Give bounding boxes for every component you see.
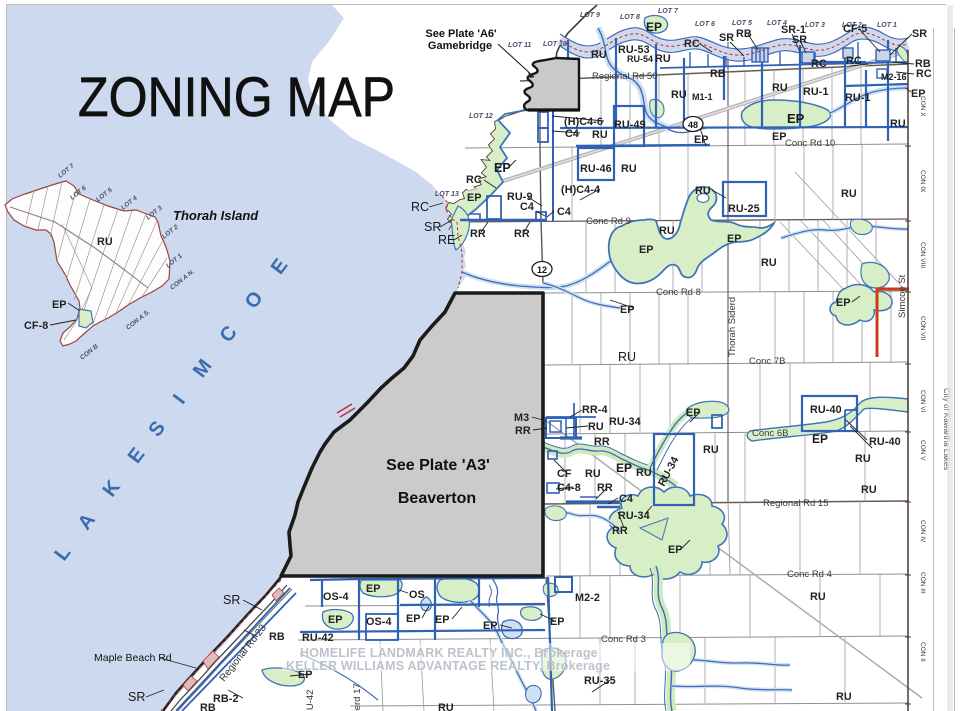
svg-text:RU: RU	[636, 467, 652, 479]
svg-text:Simcoe St: Simcoe St	[897, 274, 908, 318]
svg-text:EP: EP	[52, 299, 67, 311]
svg-text:RR: RR	[597, 482, 613, 494]
svg-text:CF: CF	[557, 468, 572, 480]
svg-text:RC: RC	[811, 58, 827, 70]
svg-text:Siderd 17: Siderd 17	[352, 683, 363, 711]
svg-text:LOT 7: LOT 7	[658, 8, 679, 15]
svg-text:RC: RC	[466, 174, 482, 186]
svg-text:RR: RR	[470, 228, 486, 240]
svg-text:HOMELIFE LANDMARK REALTY INC.,: HOMELIFE LANDMARK REALTY INC., Brokerage	[300, 646, 598, 660]
svg-text:Conc Rd 4: Conc Rd 4	[787, 569, 832, 580]
svg-text:RU: RU	[621, 163, 637, 175]
svg-text:LOT 10: LOT 10	[543, 41, 567, 48]
svg-text:Thorah Island: Thorah Island	[173, 208, 259, 223]
svg-text:C4: C4	[557, 206, 571, 218]
svg-text:RU-1: RU-1	[845, 92, 871, 104]
svg-text:Conc Rd 10: Conc Rd 10	[785, 138, 835, 149]
svg-text:EP: EP	[467, 192, 482, 204]
svg-text:RU: RU	[671, 89, 687, 101]
svg-text:RB: RB	[710, 68, 726, 80]
svg-text:CON IV: CON IV	[919, 520, 926, 543]
svg-text:EP: EP	[668, 544, 683, 556]
svg-text:RU-34: RU-34	[618, 510, 650, 522]
svg-text:12: 12	[537, 265, 547, 275]
svg-text:CON X: CON X	[919, 96, 926, 117]
svg-text:CON II: CON II	[919, 642, 926, 662]
svg-text:RB: RB	[736, 28, 752, 40]
svg-text:RU-40: RU-40	[810, 404, 842, 416]
svg-text:RR: RR	[612, 525, 628, 537]
svg-text:M2-2: M2-2	[575, 592, 600, 604]
svg-text:C4: C4	[565, 128, 579, 140]
svg-text:EP: EP	[366, 583, 381, 595]
svg-text:EP: EP	[646, 20, 662, 34]
svg-text:RU: RU	[695, 185, 711, 197]
svg-text:EP: EP	[812, 432, 828, 446]
svg-text:See Plate 'A3': See Plate 'A3'	[386, 457, 490, 474]
svg-text:RU-40: RU-40	[869, 436, 901, 448]
svg-text:LOT 1: LOT 1	[877, 22, 897, 29]
svg-text:RU-34: RU-34	[609, 416, 641, 428]
svg-text:OS-4: OS-4	[323, 591, 349, 603]
svg-text:LOT 12: LOT 12	[469, 113, 493, 120]
svg-text:RU: RU	[855, 453, 871, 465]
svg-text:CON III: CON III	[919, 572, 926, 594]
svg-text:RU: RU	[655, 53, 671, 65]
svg-text:Conc 7B: Conc 7B	[749, 356, 785, 367]
svg-text:Regional Rd 50: Regional Rd 50	[592, 71, 658, 82]
svg-text:EP: EP	[406, 613, 421, 625]
svg-text:OS: OS	[409, 589, 425, 601]
svg-text:Conc 6B: Conc 6B	[752, 428, 788, 439]
svg-text:RC: RC	[411, 200, 429, 214]
svg-text:C4-8: C4-8	[557, 482, 581, 494]
svg-text:CON VI: CON VI	[919, 390, 926, 413]
svg-text:RU: RU	[761, 257, 777, 269]
svg-text:EP: EP	[772, 131, 787, 143]
svg-text:RC: RC	[684, 38, 700, 50]
svg-text:RU-49: RU-49	[614, 119, 646, 131]
svg-text:RB-2: RB-2	[213, 693, 239, 705]
svg-text:SR: SR	[719, 32, 734, 44]
svg-text:CON VIII: CON VIII	[919, 242, 926, 268]
svg-text:ZONING MAP: ZONING MAP	[78, 65, 395, 128]
svg-text:M3: M3	[514, 412, 529, 424]
svg-text:RR: RR	[515, 425, 531, 437]
svg-text:RU: RU	[97, 236, 113, 248]
svg-text:RU: RU	[890, 118, 906, 130]
svg-text:CF-5: CF-5	[843, 23, 867, 35]
svg-text:SR: SR	[912, 28, 927, 40]
svg-text:EP: EP	[639, 244, 654, 256]
svg-text:EP: EP	[328, 614, 343, 626]
svg-text:Gamebridge: Gamebridge	[428, 40, 492, 52]
svg-text:LOT 3: LOT 3	[805, 22, 825, 29]
svg-text:OS-4: OS-4	[366, 616, 392, 628]
svg-text:EP: EP	[836, 297, 851, 309]
svg-text:(H)C4-4: (H)C4-4	[561, 184, 600, 196]
svg-text:RU-54: RU-54	[627, 54, 653, 64]
svg-text:RU: RU	[659, 225, 675, 237]
svg-text:RU: RU	[772, 82, 788, 94]
svg-text:RU: RU	[836, 691, 852, 703]
svg-text:LOT 6: LOT 6	[695, 21, 715, 28]
svg-text:RU: RU	[810, 591, 826, 603]
svg-text:48: 48	[688, 120, 698, 130]
svg-text:RU: RU	[841, 188, 857, 200]
svg-text:EP: EP	[727, 233, 742, 245]
svg-text:C4: C4	[619, 493, 633, 505]
svg-text:CON IX: CON IX	[919, 170, 926, 193]
svg-text:CON VII: CON VII	[919, 316, 926, 340]
svg-text:SR: SR	[223, 593, 240, 607]
svg-text:RU: RU	[703, 444, 719, 456]
svg-text:LOT 5: LOT 5	[732, 20, 752, 27]
svg-text:RR: RR	[594, 436, 610, 448]
svg-text:CON V: CON V	[919, 440, 926, 461]
svg-text:SR: SR	[424, 220, 441, 234]
svg-text:RR: RR	[514, 228, 530, 240]
svg-text:RU-42: RU-42	[305, 690, 316, 711]
svg-text:Conc Rd 9: Conc Rd 9	[586, 216, 631, 227]
svg-text:EP: EP	[616, 461, 632, 475]
svg-text:LOT 11: LOT 11	[508, 42, 531, 49]
svg-text:CF-8: CF-8	[24, 320, 48, 332]
svg-text:RR-4: RR-4	[582, 404, 608, 416]
svg-text:LOT 9: LOT 9	[580, 12, 600, 19]
svg-text:RU: RU	[438, 702, 454, 711]
svg-text:M1-1: M1-1	[692, 92, 713, 102]
svg-text:KELLER WILLIAMS ADVANTAGE REAL: KELLER WILLIAMS ADVANTAGE REALTY, Broker…	[286, 659, 610, 673]
svg-text:RC: RC	[916, 68, 932, 80]
svg-text:Conc Rd 8: Conc Rd 8	[656, 287, 701, 298]
svg-text:RU: RU	[861, 484, 877, 496]
svg-text:RU: RU	[592, 129, 608, 141]
svg-text:Thorah Siderd: Thorah Siderd	[727, 297, 738, 357]
svg-text:RU: RU	[591, 49, 607, 61]
svg-text:EP: EP	[550, 616, 565, 628]
svg-text:See Plate 'A6': See Plate 'A6'	[425, 28, 497, 40]
svg-text:RU: RU	[618, 350, 636, 364]
svg-text:RU-42: RU-42	[302, 632, 334, 644]
svg-text:RU: RU	[585, 468, 601, 480]
svg-text:EP: EP	[694, 134, 709, 146]
svg-text:RU-46: RU-46	[580, 163, 612, 175]
svg-text:RB: RB	[200, 702, 216, 711]
svg-text:EP: EP	[483, 620, 498, 632]
svg-text:LOT 13: LOT 13	[435, 191, 459, 198]
svg-text:RE: RE	[438, 233, 455, 247]
svg-text:RU-25: RU-25	[728, 203, 760, 215]
svg-text:RU-35: RU-35	[584, 675, 616, 687]
svg-text:EP: EP	[435, 614, 450, 626]
svg-text:EP: EP	[787, 111, 805, 126]
svg-text:RB: RB	[269, 631, 285, 643]
svg-text:Regional Rd 15: Regional Rd 15	[763, 498, 829, 509]
svg-text:SR: SR	[128, 690, 145, 704]
svg-text:M2-16: M2-16	[881, 72, 907, 82]
svg-text:RU-1: RU-1	[803, 86, 829, 98]
svg-text:LOT 8: LOT 8	[620, 14, 640, 21]
svg-text:RU: RU	[588, 421, 604, 433]
svg-text:Beaverton: Beaverton	[398, 490, 476, 507]
